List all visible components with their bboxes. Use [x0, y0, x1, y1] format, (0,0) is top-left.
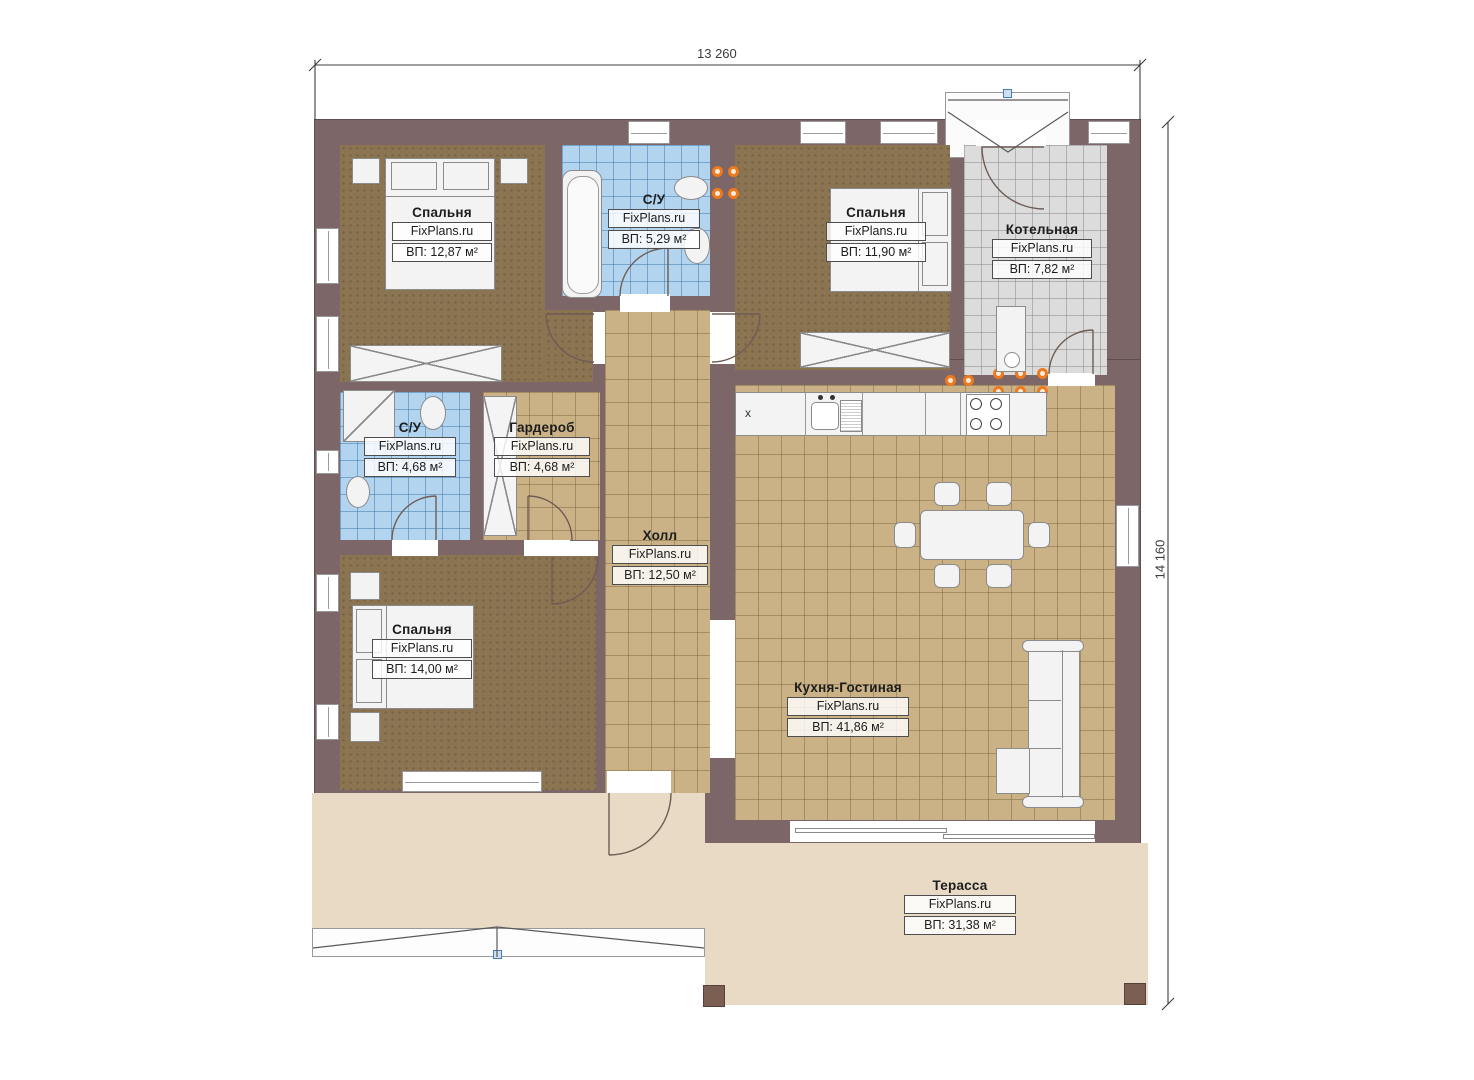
bedroom-bottom-door-opening	[550, 541, 598, 556]
sofa	[1028, 648, 1080, 800]
bathtub-inner	[567, 176, 599, 294]
hall-terrace-door-opening	[607, 771, 671, 793]
room-area: ВП: 14,00 м²	[372, 660, 472, 679]
room-area: ВП: 41,86 м²	[787, 718, 909, 737]
window	[880, 121, 938, 144]
room-name: Спальня	[826, 205, 926, 220]
canopy-node-marker	[493, 950, 502, 959]
window	[316, 704, 339, 740]
nightstand	[350, 712, 380, 742]
room-label-bathroom-left: С/У FixPlans.ru ВП: 4,68 м²	[364, 420, 456, 477]
floor-plan-canvas: х	[0, 0, 1474, 1080]
burner	[990, 398, 1002, 410]
terrace-floor-left	[312, 793, 705, 928]
room-area: ВП: 12,87 м²	[392, 243, 492, 262]
room-brand: FixPlans.ru	[787, 697, 909, 716]
window	[402, 771, 542, 792]
room-name: С/У	[608, 192, 700, 207]
terrace-column	[703, 985, 725, 1007]
room-name: Спальня	[392, 205, 492, 220]
burner	[970, 418, 982, 430]
tap	[818, 395, 823, 400]
terrace-canopy-edge	[312, 928, 705, 957]
burner	[970, 398, 982, 410]
pillow	[443, 162, 489, 190]
sink-bowl	[811, 402, 839, 430]
boiler-dial	[1004, 352, 1020, 368]
counter-divider	[960, 393, 961, 435]
room-brand: FixPlans.ru	[904, 895, 1016, 914]
sofa-seat-line	[1029, 748, 1061, 749]
nightstand	[500, 158, 528, 184]
room-label-bedroom-top-right: Спальня FixPlans.ru ВП: 11,90 м²	[826, 205, 926, 262]
room-label-terrace: Терасса FixPlans.ru ВП: 31,38 м²	[904, 878, 1016, 935]
downlight-icon	[712, 166, 723, 177]
downlight-icon	[712, 188, 723, 199]
window	[800, 121, 846, 144]
terrace-column	[1124, 983, 1146, 1005]
sink	[346, 476, 370, 508]
sliding-door-panel	[943, 834, 1095, 839]
room-label-bedroom-bottom: Спальня FixPlans.ru ВП: 14,00 м²	[372, 622, 472, 679]
sofa-chaise	[996, 748, 1030, 794]
burner	[990, 418, 1002, 430]
room-area: ВП: 31,38 м²	[904, 916, 1016, 935]
sofa-armrest	[1022, 796, 1084, 808]
downlight-icon	[1037, 368, 1048, 379]
room-brand: FixPlans.ru	[992, 239, 1092, 258]
dimension-width-label: 13 260	[697, 46, 737, 61]
chair	[1028, 522, 1050, 548]
room-area: ВП: 11,90 м²	[826, 243, 926, 262]
window	[316, 574, 339, 612]
room-area: ВП: 4,68 м²	[364, 458, 456, 477]
room-brand: FixPlans.ru	[372, 639, 472, 658]
room-area: ВП: 7,82 м²	[992, 260, 1092, 279]
wardrobe-cabinet	[350, 345, 502, 382]
window	[1088, 121, 1130, 144]
nightstand	[352, 158, 380, 184]
room-name: С/У	[364, 420, 456, 435]
room-label-boiler: Котельная FixPlans.ru ВП: 7,82 м²	[992, 222, 1092, 279]
hall-kitchen-passage	[710, 620, 735, 758]
room-brand: FixPlans.ru	[826, 222, 926, 241]
room-area: ВП: 12,50 м²	[612, 566, 708, 585]
downlight-icon	[945, 375, 956, 386]
room-name: Спальня	[372, 622, 472, 637]
chair	[934, 564, 960, 588]
dimension-height-label: 14 160	[1152, 540, 1167, 580]
pillow	[391, 162, 437, 190]
tap	[830, 395, 835, 400]
room-brand: FixPlans.ru	[392, 222, 492, 241]
room-name: Холл	[612, 528, 708, 543]
room-label-kitchen-living: Кухня-Гостиная FixPlans.ru ВП: 41,86 м²	[787, 680, 909, 737]
room-brand: FixPlans.ru	[494, 437, 590, 456]
blanket-line	[386, 196, 494, 197]
room-label-bedroom-top-left: Спальня FixPlans.ru ВП: 12,87 м²	[392, 205, 492, 262]
room-label-hall: Холл FixPlans.ru ВП: 12,50 м²	[612, 528, 708, 585]
bathroom-top-door-opening	[620, 294, 670, 312]
nightstand	[350, 572, 380, 600]
room-brand: FixPlans.ru	[612, 545, 708, 564]
downlight-icon	[728, 166, 739, 177]
bedroom-top-left-door-opening	[593, 312, 605, 364]
sofa-back-line	[1062, 650, 1063, 798]
counter-divider	[862, 393, 863, 435]
bedroom-top-right-door-opening	[710, 312, 735, 364]
counter-symbol: х	[745, 406, 751, 420]
room-name: Гардероб	[494, 420, 590, 435]
bathroom-left-door-opening	[392, 540, 438, 556]
room-brand: FixPlans.ru	[364, 437, 456, 456]
chair	[934, 482, 960, 506]
counter-divider	[805, 393, 806, 435]
entrance-door-opening	[976, 120, 1046, 146]
room-label-bathroom-top: С/У FixPlans.ru ВП: 5,29 м²	[608, 192, 700, 249]
window	[628, 121, 670, 144]
bedroom-top-left-floor-ext	[545, 310, 593, 382]
chair	[986, 482, 1012, 506]
porch-node-marker	[1003, 89, 1012, 98]
chair	[894, 522, 916, 548]
room-brand: FixPlans.ru	[608, 209, 700, 228]
room-area: ВП: 4,68 м²	[494, 458, 590, 477]
window	[316, 316, 339, 372]
sliding-door-panel	[795, 828, 947, 833]
boiler-kitchen-door-opening	[1048, 373, 1095, 386]
room-name: Кухня-Гостиная	[787, 680, 909, 695]
room-label-wardrobe: Гардероб FixPlans.ru ВП: 4,68 м²	[494, 420, 590, 477]
chair	[986, 564, 1012, 588]
sofa-seat-line	[1029, 700, 1061, 701]
room-name: Терасса	[904, 878, 1016, 893]
wardrobe-cabinet	[800, 332, 950, 368]
room-area: ВП: 5,29 м²	[608, 230, 700, 249]
sink-drainer	[840, 400, 862, 432]
window	[316, 450, 339, 474]
downlight-icon	[963, 375, 974, 386]
room-name: Котельная	[992, 222, 1092, 237]
downlight-icon	[728, 188, 739, 199]
sofa-armrest	[1022, 640, 1084, 652]
window	[316, 228, 339, 284]
window	[1116, 505, 1139, 567]
counter-divider	[925, 393, 926, 435]
dining-table	[920, 510, 1024, 560]
